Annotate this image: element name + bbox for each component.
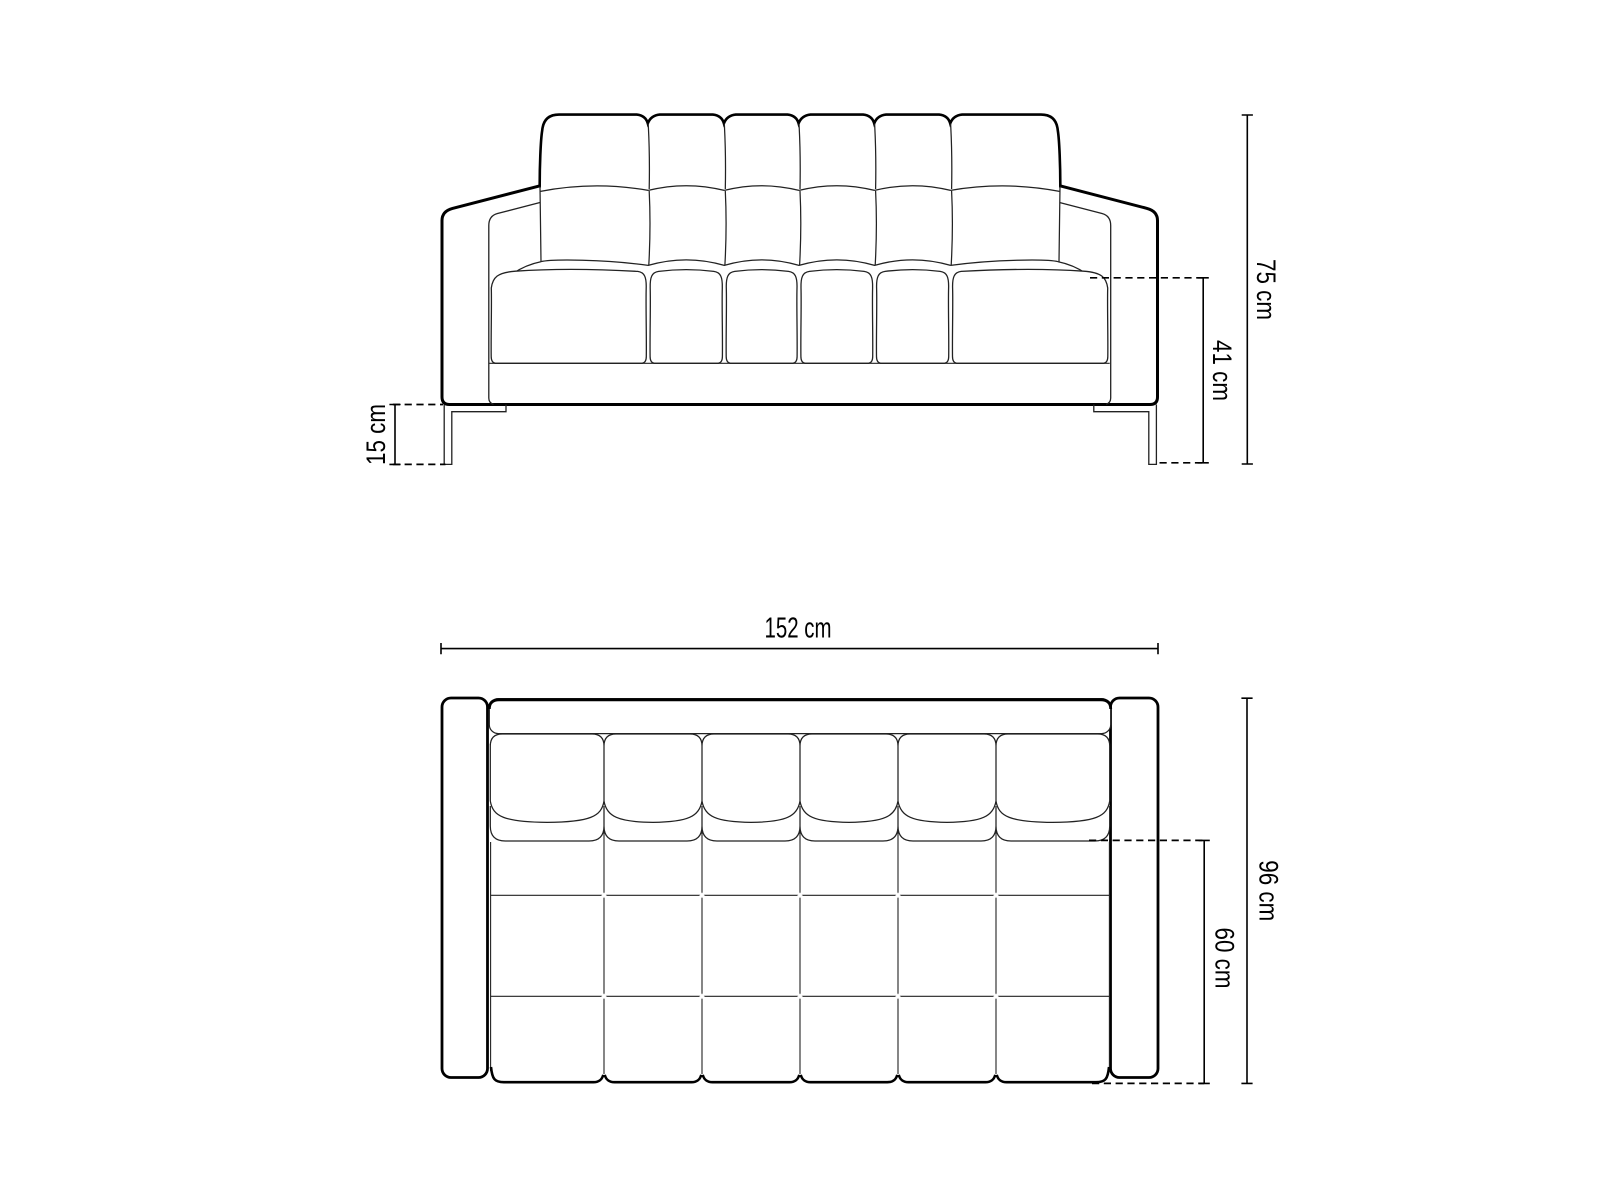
svg-text:15 cm: 15 cm: [361, 404, 391, 465]
svg-text:96 cm: 96 cm: [1254, 860, 1284, 921]
svg-text:75 cm: 75 cm: [1251, 259, 1281, 320]
svg-text:152 cm: 152 cm: [765, 613, 832, 645]
svg-text:60 cm: 60 cm: [1210, 928, 1240, 989]
svg-text:41 cm: 41 cm: [1207, 340, 1237, 401]
